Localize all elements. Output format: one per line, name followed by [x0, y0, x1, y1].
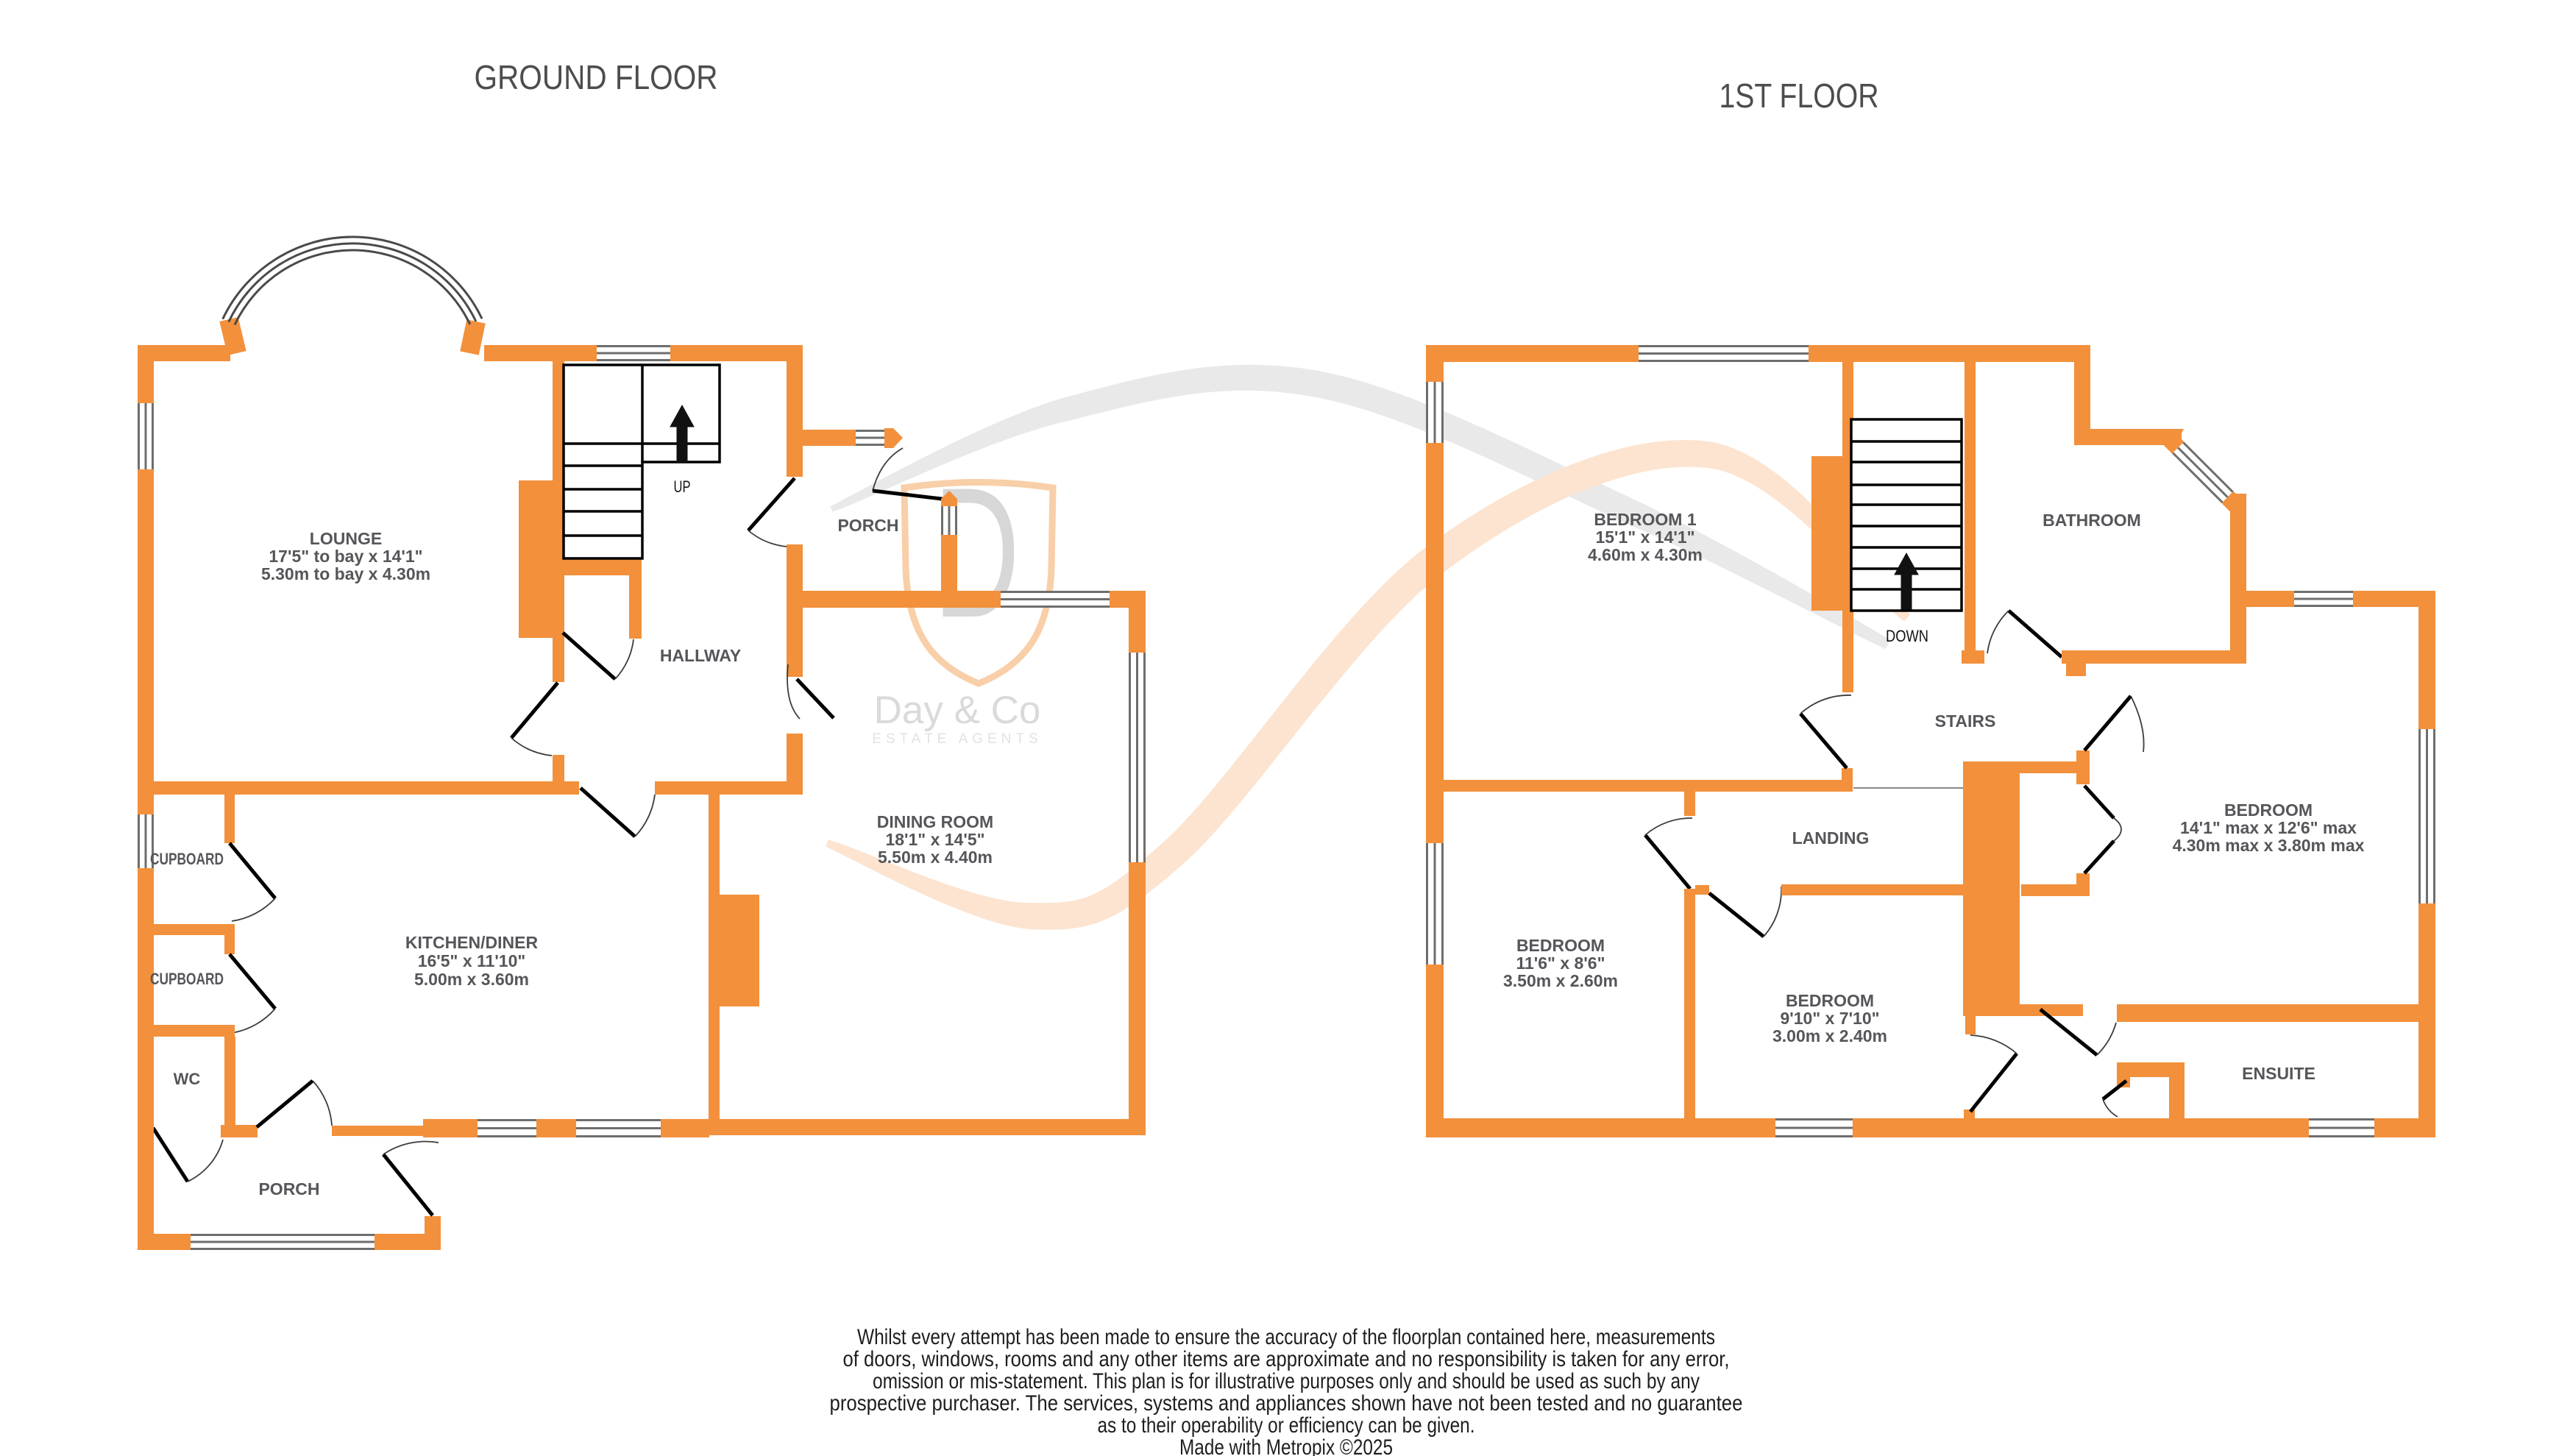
svg-text:5.50m x 4.40m: 5.50m x 4.40m: [878, 848, 993, 867]
svg-text:of doors, windows, rooms and a: of doors, windows, rooms and any other i…: [843, 1347, 1730, 1371]
svg-text:STAIRS: STAIRS: [1935, 711, 1996, 731]
svg-text:as to their operability or eff: as to their operability or efficiency ca…: [1098, 1413, 1475, 1438]
svg-text:BEDROOM: BEDROOM: [1516, 936, 1605, 955]
svg-text:GROUND FLOOR: GROUND FLOOR: [475, 58, 718, 96]
svg-text:18'1" x 14'5": 18'1" x 14'5": [885, 830, 984, 849]
svg-text:DOWN: DOWN: [1886, 627, 1928, 645]
svg-text:15'1" x 14'1": 15'1" x 14'1": [1595, 528, 1694, 547]
svg-text:ESTATE AGENTS: ESTATE AGENTS: [872, 731, 1042, 747]
svg-text:3.00m x 2.40m: 3.00m x 2.40m: [1772, 1026, 1887, 1045]
svg-text:4.30m max x 3.80m max: 4.30m max x 3.80m max: [2173, 836, 2365, 855]
svg-text:14'1" max x 12'6" max: 14'1" max x 12'6" max: [2180, 818, 2357, 837]
svg-text:BATHROOM: BATHROOM: [2043, 511, 2141, 530]
svg-text:LOUNGE: LOUNGE: [310, 529, 382, 548]
svg-text:5.30m to bay x 4.30m: 5.30m to bay x 4.30m: [261, 564, 430, 583]
svg-text:ENSUITE: ENSUITE: [2242, 1064, 2315, 1083]
svg-text:9'10" x 7'10": 9'10" x 7'10": [1780, 1009, 1879, 1028]
svg-text:prospective purchaser. The ser: prospective purchaser. The services, sys…: [830, 1391, 1743, 1416]
svg-text:4.60m x 4.30m: 4.60m x 4.30m: [1588, 545, 1703, 564]
svg-text:HALLWAY: HALLWAY: [660, 646, 741, 665]
svg-text:3.50m x 2.60m: 3.50m x 2.60m: [1503, 971, 1618, 990]
svg-text:16'5" x 11'10": 16'5" x 11'10": [418, 951, 526, 970]
svg-text:DINING ROOM: DINING ROOM: [877, 812, 993, 831]
svg-text:5.00m x 3.60m: 5.00m x 3.60m: [414, 970, 529, 989]
svg-text:Whilst every attempt has been: Whilst every attempt has been made to en…: [857, 1325, 1715, 1349]
svg-text:UP: UP: [674, 477, 691, 496]
svg-text:BEDROOM: BEDROOM: [1786, 991, 1874, 1010]
svg-text:11'6" x 8'6": 11'6" x 8'6": [1516, 953, 1605, 973]
svg-text:WC: WC: [174, 1070, 201, 1088]
svg-text:BEDROOM 1: BEDROOM 1: [1594, 510, 1697, 529]
svg-text:Day & Co: Day & Co: [874, 689, 1041, 732]
svg-text:1ST FLOOR: 1ST FLOOR: [1720, 77, 1879, 115]
svg-text:Made with Metropix ©2025: Made with Metropix ©2025: [1179, 1435, 1393, 1456]
svg-text:17'5" to bay x 14'1": 17'5" to bay x 14'1": [269, 547, 422, 566]
svg-text:PORCH: PORCH: [258, 1179, 319, 1198]
svg-text:CUPBOARD: CUPBOARD: [150, 970, 224, 988]
svg-text:BEDROOM: BEDROOM: [2224, 800, 2313, 820]
svg-text:KITCHEN/DINER: KITCHEN/DINER: [405, 933, 539, 952]
svg-text:PORCH: PORCH: [837, 516, 898, 535]
svg-text:CUPBOARD: CUPBOARD: [150, 850, 224, 868]
svg-text:LANDING: LANDING: [1792, 828, 1870, 848]
svg-text:omission or mis-statement. Thi: omission or mis-statement. This plan is …: [873, 1369, 1700, 1393]
